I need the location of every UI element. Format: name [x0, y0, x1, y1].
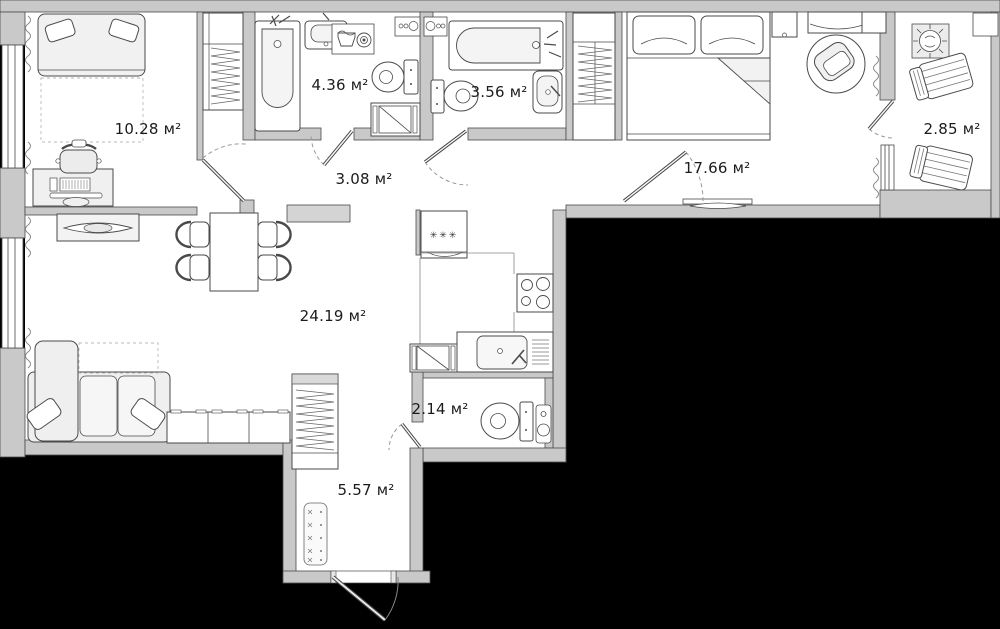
hall-closet: [292, 374, 338, 469]
laundry-basin-icon: [332, 24, 374, 54]
sink: [533, 71, 562, 113]
freezer-icon: ✳✳✳: [430, 231, 459, 241]
stove: [517, 274, 553, 312]
side-unit: [862, 12, 886, 33]
wardrobe: [203, 13, 243, 110]
area-label-corridor: 3.08 м²: [336, 170, 393, 188]
bathtub: [449, 21, 563, 70]
window-left-bottom: [2, 238, 23, 348]
area-label-hallway: 5.57 м²: [338, 481, 395, 499]
toilet: [481, 402, 533, 441]
area-label-bathroom-large: 4.36 м²: [312, 76, 369, 94]
kitchen-sink: [457, 332, 553, 372]
tv-console: [57, 214, 139, 241]
window-balcony: [881, 145, 894, 190]
desk-shelf: [808, 12, 868, 33]
plant-table: [912, 24, 949, 58]
double-bed: [627, 12, 770, 140]
area-label-small-bedroom: 10.28 м²: [115, 120, 182, 138]
duct-shaft: [287, 205, 350, 222]
area-label-bathroom-small: 3.56 м²: [471, 83, 528, 101]
dining-table: [210, 213, 258, 291]
cabinet: [395, 17, 420, 36]
window-left-top: [2, 45, 23, 168]
nightstand: [772, 12, 797, 37]
area-label-balcony: 2.85 м²: [924, 120, 981, 138]
armchair: [807, 35, 865, 93]
corner-sink: [536, 405, 551, 443]
area-label-master-bedroom: 17.66 м²: [684, 159, 751, 177]
washing-machine: [371, 103, 420, 136]
floor-plan: 10.28 м² 4.36 м² 3.56 м² 3.08 м² 17.66 м…: [0, 0, 1000, 629]
desk: [33, 169, 113, 207]
door-mat: [304, 503, 327, 565]
cabinet: [424, 17, 447, 36]
kitchen-cabinets: [167, 410, 290, 443]
corner-cabinet: [973, 13, 998, 36]
area-label-wc: 2.14 м²: [412, 400, 469, 418]
area-label-living-kitchen: 24.19 м²: [300, 307, 367, 325]
bathtub: [255, 15, 300, 131]
toilet: [372, 60, 418, 94]
washing-machine: [410, 344, 457, 372]
wardrobe: [573, 13, 615, 140]
